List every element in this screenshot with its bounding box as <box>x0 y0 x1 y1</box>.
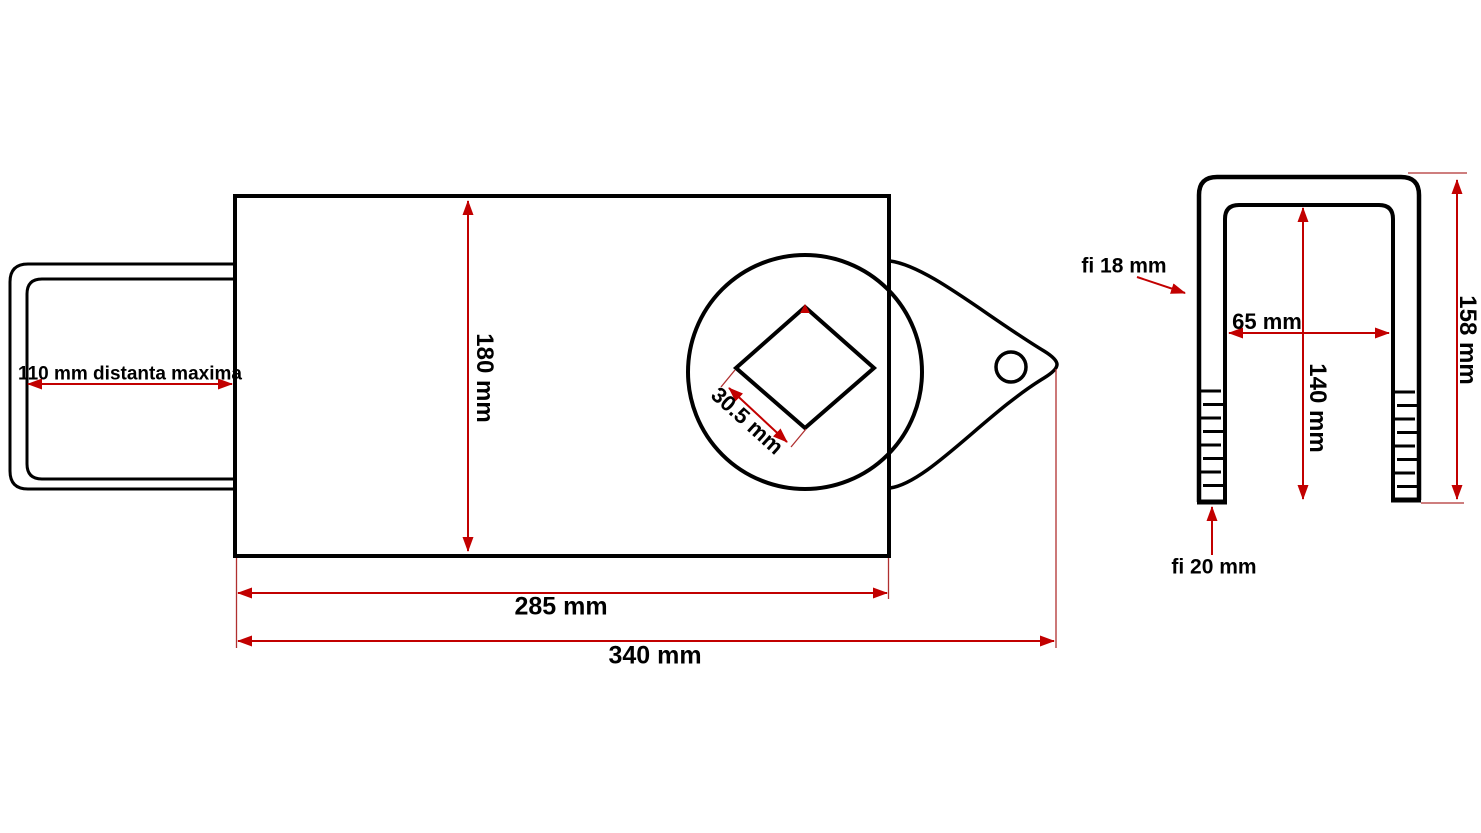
dim-label-inner-depth: 140 mm <box>1305 363 1329 452</box>
main-body-outline <box>235 196 889 556</box>
dim-label-total-height: 158 mm <box>1455 295 1479 384</box>
technical-drawing-page: 110 mm distanta maxima 180 mm 30.5 mm 28… <box>0 0 1481 833</box>
u-bolt-outline <box>1197 177 1421 502</box>
clamp-flange-outline <box>890 261 1057 488</box>
dim-label-distanta-maxima: 110 mm distanta maxima <box>18 365 242 384</box>
dim-label-rod-diameter: fi 18 mm <box>1081 256 1166 277</box>
left-leg-threads <box>1197 391 1227 486</box>
flange-hole <box>996 352 1026 382</box>
u-bolt-inner-edge <box>1225 205 1393 502</box>
dim-label-thread-diameter: fi 20 mm <box>1171 557 1256 578</box>
u-bolt-outer-edge <box>1199 177 1419 502</box>
dim-label-total-length: 340 mm <box>608 644 701 669</box>
dim-label-body-height: 180 mm <box>472 333 496 422</box>
dim-label-inner-width: 65 mm <box>1232 311 1302 333</box>
right-leg-threads <box>1391 392 1421 487</box>
leader-arrow-fi18 <box>1137 277 1185 293</box>
dim-label-body-length: 285 mm <box>514 595 607 620</box>
